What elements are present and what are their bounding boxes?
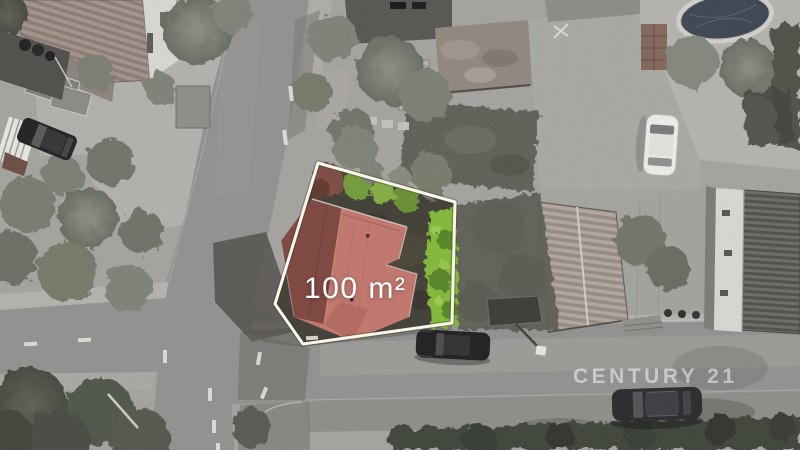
- century21-watermark: CENTURY 21: [573, 366, 738, 387]
- aerial-photo: 100 m² CENTURY 21: [0, 0, 800, 450]
- plot-area-label: 100 m²: [304, 274, 406, 304]
